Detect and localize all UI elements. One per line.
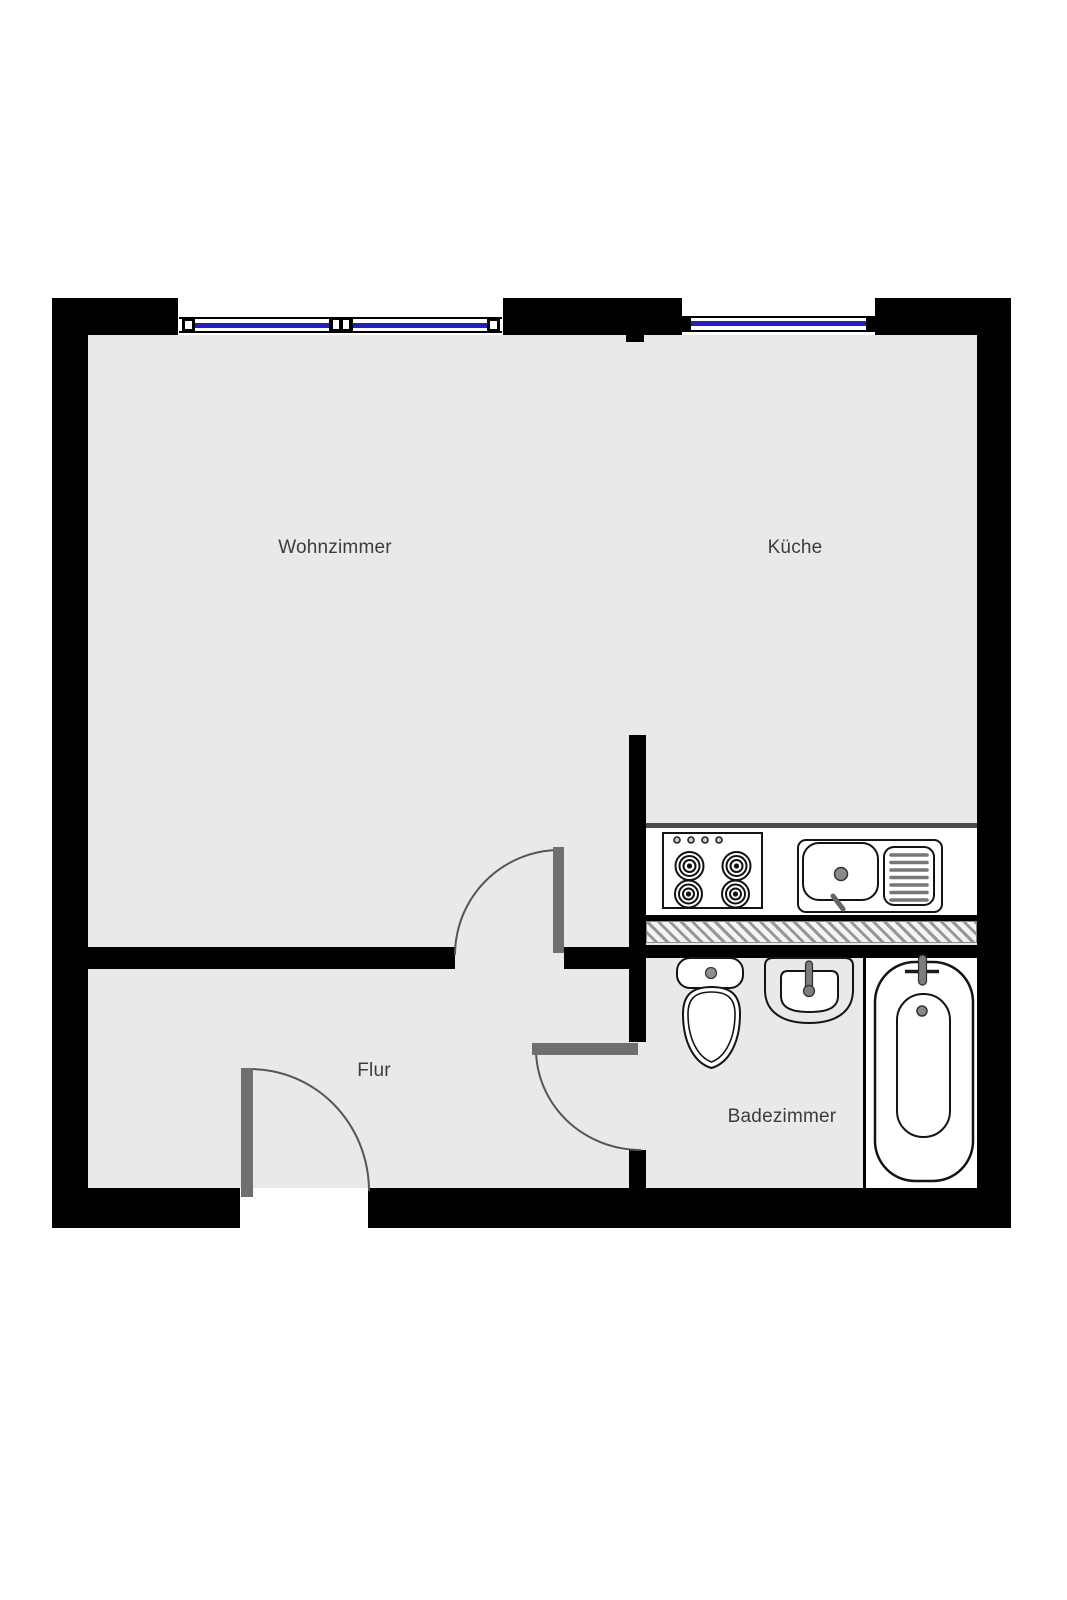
fixtures-layer xyxy=(0,0,1067,1600)
room-label-badezimmer: Badezimmer xyxy=(692,1106,872,1128)
stove-icon xyxy=(663,833,762,908)
floor-plan: Wohnzimmer Küche Flur Badezimmer xyxy=(0,0,1067,1600)
room-label-kueche: Küche xyxy=(720,537,870,559)
room-label-wohnzimmer: Wohnzimmer xyxy=(235,537,435,559)
room-label-flur: Flur xyxy=(324,1060,424,1082)
washbasin-icon xyxy=(765,958,853,1023)
toilet-icon xyxy=(677,958,743,1068)
kitchen-sink-icon xyxy=(798,840,942,912)
bathtub-icon xyxy=(875,955,973,1181)
